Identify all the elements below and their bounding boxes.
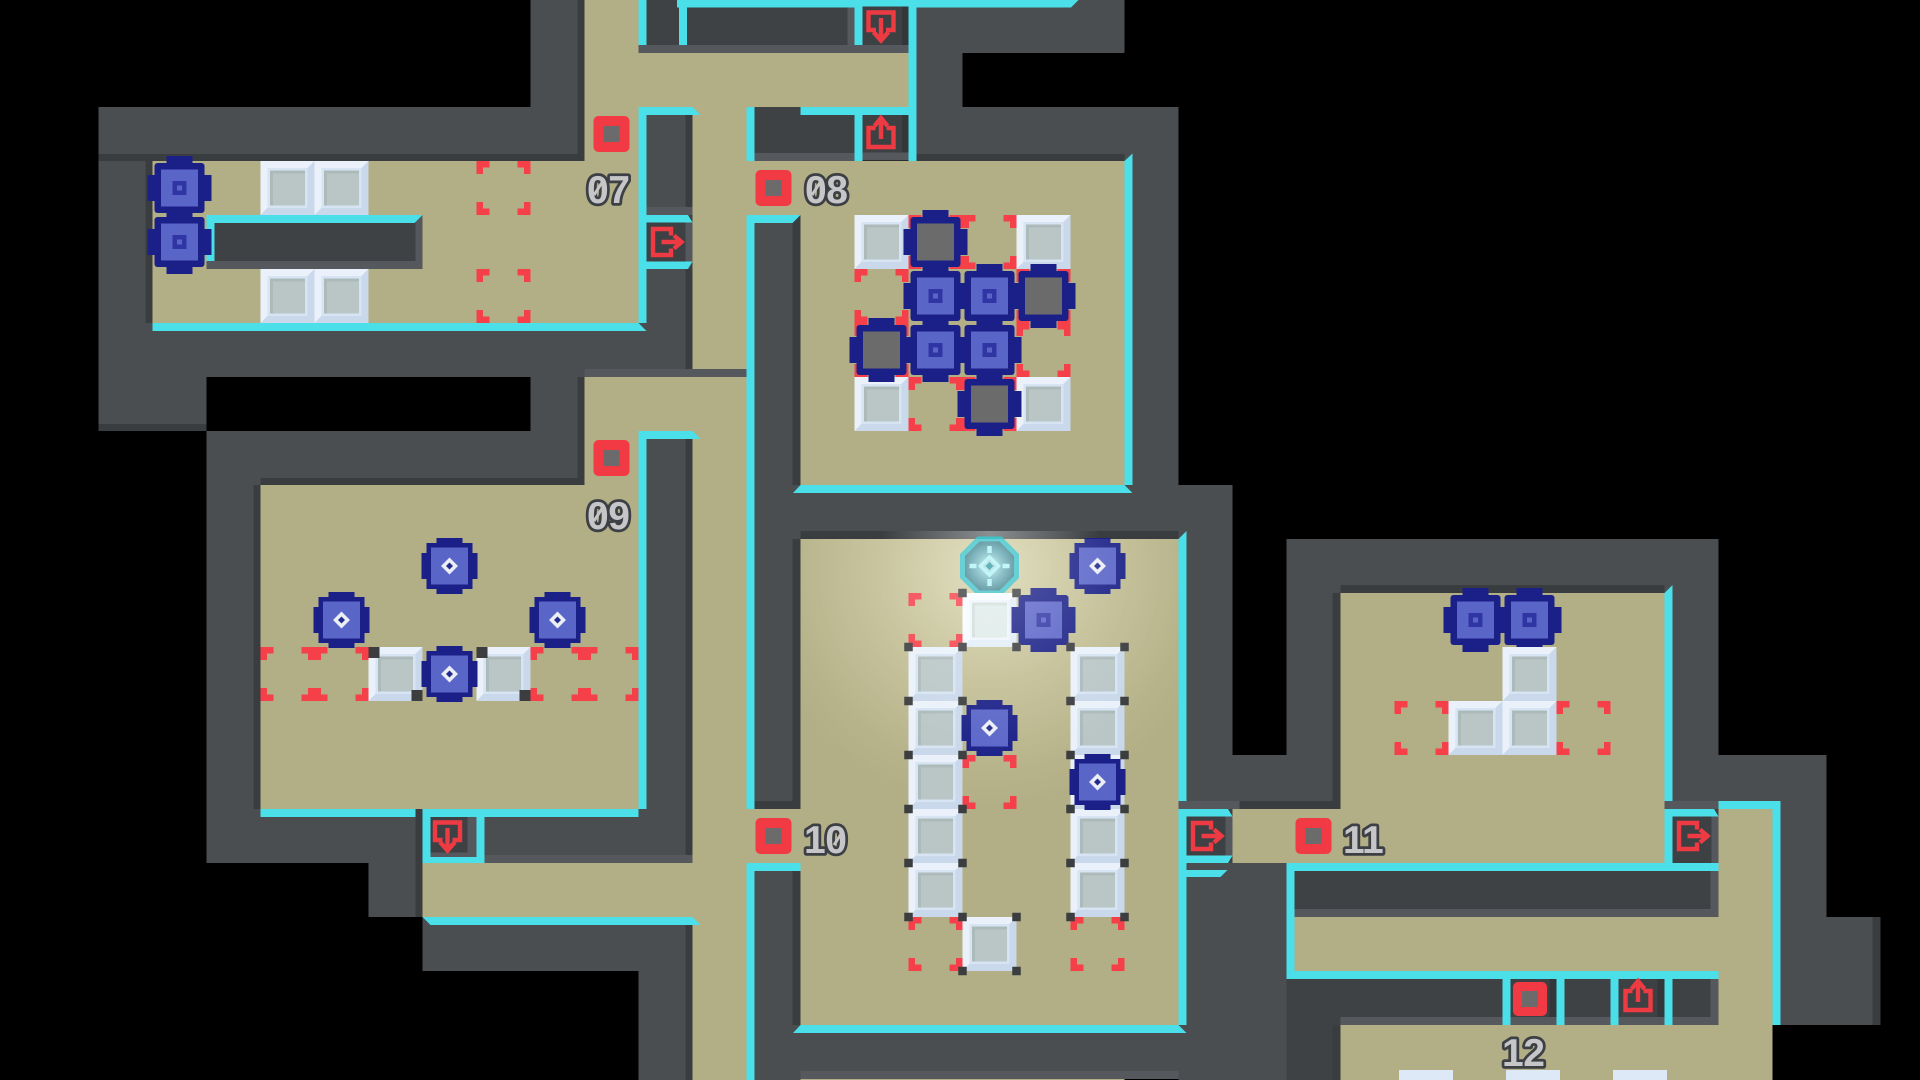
svg-text:11: 11 — [1343, 819, 1383, 862]
svg-text:08: 08 — [805, 169, 847, 212]
svg-text:12: 12 — [1502, 1032, 1544, 1075]
svg-text:09: 09 — [587, 495, 629, 538]
svg-text:07: 07 — [587, 169, 629, 212]
